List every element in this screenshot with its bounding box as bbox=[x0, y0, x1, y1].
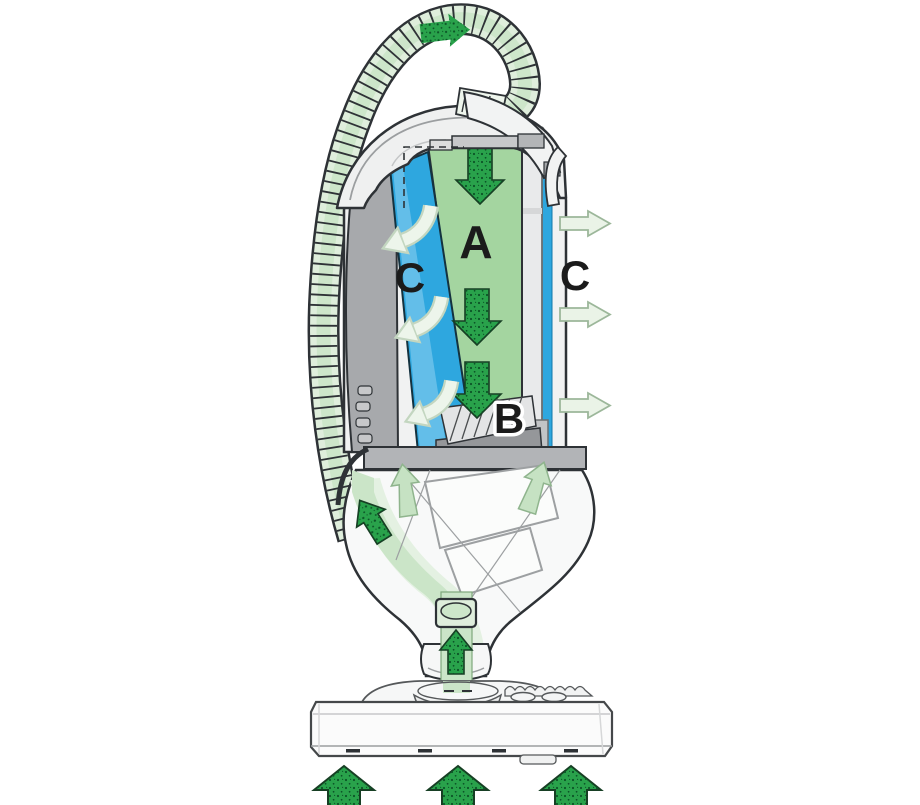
label-a: A bbox=[459, 216, 492, 268]
motor-platform bbox=[364, 447, 586, 469]
bag-lid-latch bbox=[430, 140, 452, 150]
diagram-canvas: A C C B bbox=[0, 0, 920, 805]
latch-tab bbox=[356, 402, 370, 411]
label-c-outer: C bbox=[560, 252, 590, 299]
label-b: B bbox=[494, 395, 524, 442]
up-airflow-arrow-icon bbox=[541, 766, 601, 805]
base-tread bbox=[346, 749, 360, 753]
exhaust-arrow-icon bbox=[560, 302, 610, 327]
base-tread bbox=[492, 749, 506, 753]
latch-tab bbox=[358, 434, 372, 443]
latch-tab bbox=[356, 418, 370, 427]
vacuum-airflow-diagram: A C C B bbox=[0, 0, 920, 805]
up-airflow-arrow-icon bbox=[428, 766, 488, 805]
base-button bbox=[511, 693, 535, 702]
base-tread bbox=[564, 749, 578, 753]
label-c-inner: C bbox=[395, 254, 425, 301]
latch-tab bbox=[358, 386, 372, 395]
base-bumper bbox=[520, 755, 556, 764]
exhaust-arrow-icon bbox=[560, 211, 610, 236]
bag-lid bbox=[452, 136, 518, 148]
bag-lid-right bbox=[518, 134, 544, 148]
neck-coupler-opening bbox=[441, 603, 471, 619]
intake-arrows bbox=[314, 766, 601, 805]
base-button bbox=[542, 693, 566, 702]
up-airflow-arrow-icon bbox=[314, 766, 374, 805]
base-tread bbox=[418, 749, 432, 753]
exhaust-arrows bbox=[560, 211, 610, 418]
exhaust-arrow-icon bbox=[560, 393, 610, 418]
floorhead bbox=[311, 681, 612, 764]
base-body bbox=[311, 702, 612, 756]
